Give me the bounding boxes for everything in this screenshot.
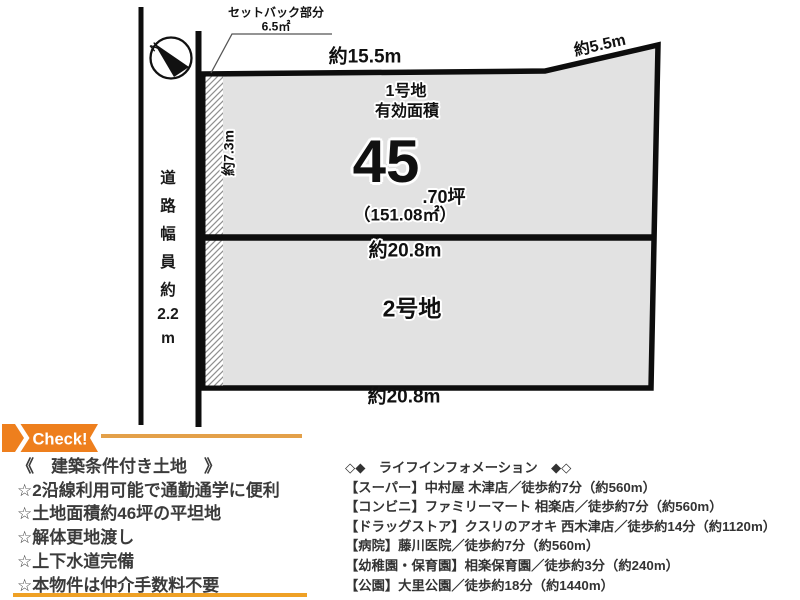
orange-rule-bottom	[13, 593, 307, 598]
setback-hatch-plot2	[206, 241, 224, 386]
dimension-left: 約7.3m	[221, 130, 236, 176]
plot1-tsubo-main: 45	[353, 129, 420, 195]
check-ribbon: Check!	[2, 424, 98, 452]
plot1-name: 1号地	[386, 83, 427, 101]
road-char: 道	[160, 166, 176, 188]
road-char: 約	[160, 278, 176, 300]
check-item: ☆上下水道完備	[17, 550, 280, 574]
dimension-top: 約15.5m	[329, 48, 402, 69]
land-plot-flyer: N セットバック部分 6.5㎡ 約15.5m 約5.5m 約7.3m 約20.8…	[0, 0, 800, 600]
road-char: 幅	[160, 222, 176, 244]
life-info-item: 【公園】大里公園／徒歩約18分（約1440m）	[345, 576, 776, 596]
check-list: 《 建築条件付き土地 》 ☆2沿線利用可能で通勤通学に便利 ☆土地面積約46坪の…	[17, 455, 280, 597]
road-char: 2.2	[157, 306, 179, 324]
plot1-area-label: 有効面積	[375, 103, 439, 121]
compass-icon: N	[148, 38, 192, 79]
life-info-item: 【幼稚園・保育園】相楽保育園／徒歩約3分（約240m）	[345, 556, 776, 576]
setback-area-value: 6.5㎡	[262, 20, 291, 33]
life-info-title: ◇◆ ライフインフォメーション ◆◇	[345, 458, 776, 478]
orange-rule-top	[101, 434, 302, 438]
setback-label: セットバック部分	[228, 6, 324, 19]
check-item: ☆解体更地渡し	[17, 526, 280, 550]
check-item: ☆土地面積約46坪の平坦地	[17, 502, 280, 526]
life-information: ◇◆ ライフインフォメーション ◆◇ 【スーパー】中村屋 木津店／徒歩約7分（約…	[345, 458, 776, 595]
road-char: 路	[160, 194, 176, 216]
plot1-sqm: （151.08㎡）	[354, 207, 457, 226]
life-info-item: 【スーパー】中村屋 木津店／徒歩約7分（約560m）	[345, 478, 776, 498]
life-info-item: 【ドラッグストア】クスリのアオキ 西木津店／徒歩約14分（約1120m）	[345, 517, 776, 537]
road-char: 員	[160, 250, 176, 272]
life-info-item: 【コンビニ】ファミリーマート 相楽店／徒歩約7分（約560m）	[345, 497, 776, 517]
road-char: m	[161, 330, 175, 348]
plot2-name: 2号地	[383, 296, 442, 321]
setback-leader-line	[211, 34, 332, 73]
check-ribbon-label: Check!	[32, 431, 87, 449]
check-ribbon-tail	[2, 424, 24, 452]
dimension-middle: 約20.8m	[369, 242, 442, 263]
check-item: 《 建築条件付き土地 》	[17, 455, 280, 479]
check-item: ☆2沿線利用可能で通勤通学に便利	[17, 479, 280, 503]
life-info-item: 【病院】藤川医院／徒歩約7分（約560m）	[345, 536, 776, 556]
dimension-bottom: 約20.8m	[368, 388, 441, 409]
road-width-label: 道 路 幅 員 約 2.2 m	[157, 166, 179, 348]
